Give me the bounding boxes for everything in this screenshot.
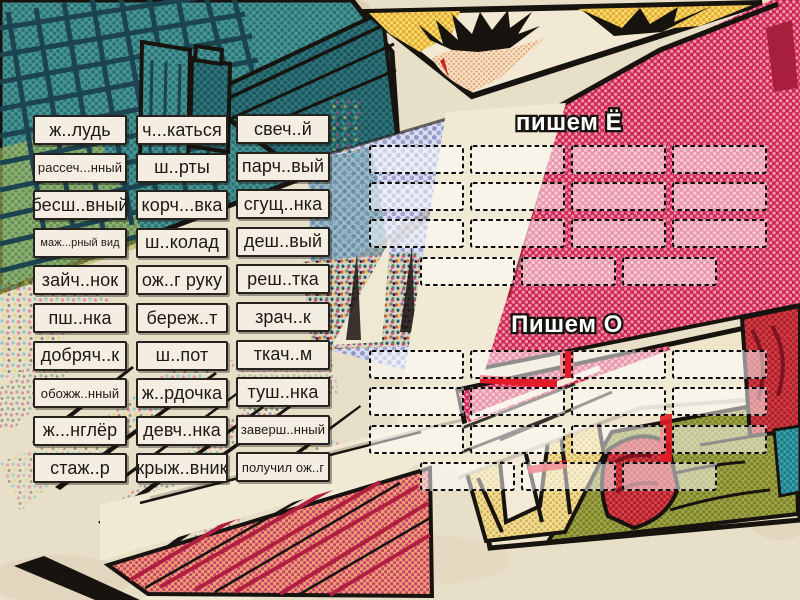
svg-text:пишем Ё: пишем Ё bbox=[516, 109, 622, 136]
svg-text:Пишем О: Пишем О bbox=[511, 311, 623, 338]
